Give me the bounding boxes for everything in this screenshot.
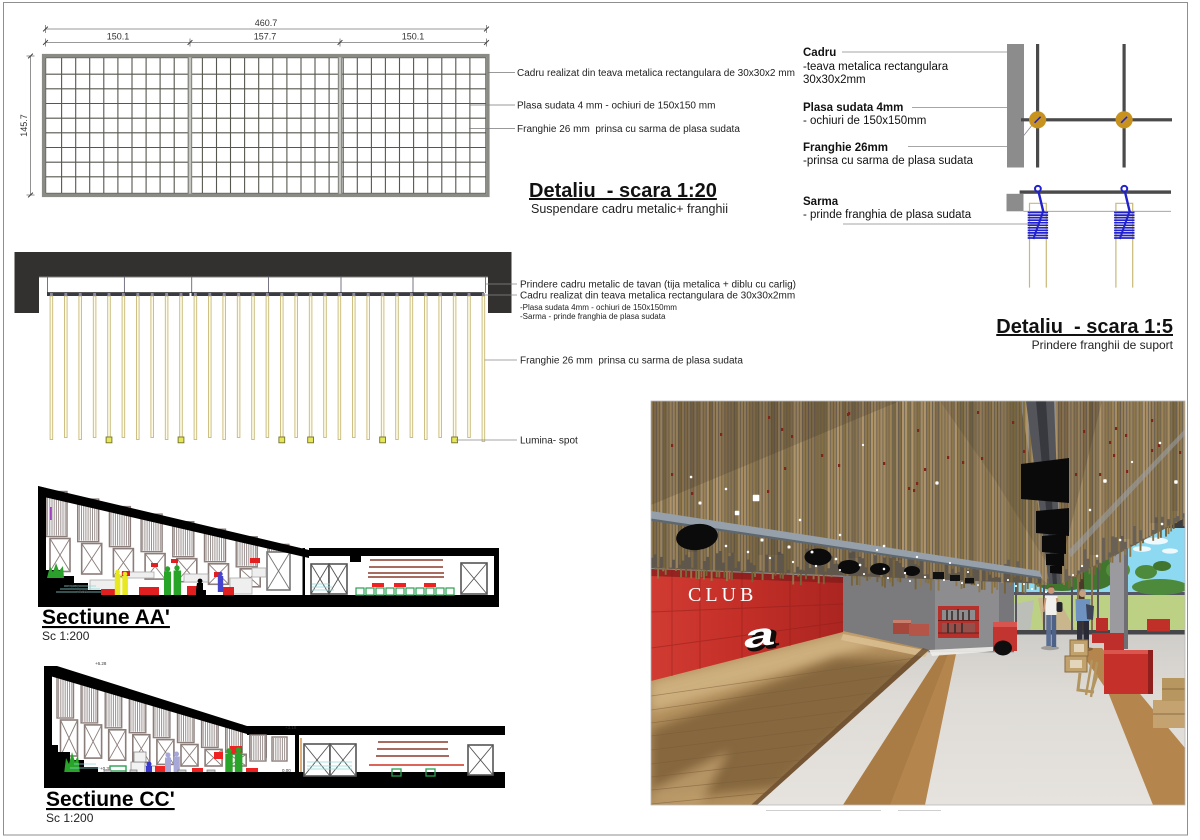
svg-text:Prindere cadru metalic de tava: Prindere cadru metalic de tavan (tija me… xyxy=(520,280,796,291)
svg-text:0.00: 0.00 xyxy=(282,768,291,773)
svg-text:-Plasa sudata 4mm - ochiuri de: -Plasa sudata 4mm - ochiuri de 150x150mm xyxy=(520,303,677,312)
svg-text:CLUB: CLUB xyxy=(688,584,757,606)
svg-text:-Sarma - prinde franghia de pl: -Sarma - prinde franghia de plasa sudata xyxy=(520,312,666,321)
svg-text:145.7: 145.7 xyxy=(19,114,29,137)
svg-text:460.7: 460.7 xyxy=(255,18,278,28)
svg-text:+0.51: +0.51 xyxy=(76,589,88,594)
svg-text:Lumina- spot: Lumina- spot xyxy=(520,436,578,447)
svg-text:Detaliu - scara 1:20: Detaliu - scara 1:20 xyxy=(529,180,717,202)
svg-text:-prinsa cu sarma de plasa suda: -prinsa cu sarma de plasa sudata xyxy=(803,155,974,167)
svg-text:150.1: 150.1 xyxy=(402,32,425,42)
svg-text:Suspendare cadru metalic+ fran: Suspendare cadru metalic+ franghii xyxy=(531,202,728,216)
svg-text:- ochiuri de 150x150mm: - ochiuri de 150x150mm xyxy=(803,115,926,127)
svg-text:Prindere franghii de suport: Prindere franghii de suport xyxy=(1032,338,1174,352)
svg-text:157.7: 157.7 xyxy=(254,32,277,42)
svg-text:Cadru realizat din teava metal: Cadru realizat din teava metalica rectan… xyxy=(517,68,795,79)
svg-text:Detaliu - scara 1:5: Detaliu - scara 1:5 xyxy=(996,316,1173,338)
svg-text:Franghie 26mm: Franghie 26mm xyxy=(803,142,888,154)
svg-text:Sc 1:200: Sc 1:200 xyxy=(42,629,90,643)
svg-text:Sectiune AA': Sectiune AA' xyxy=(42,606,170,629)
svg-text:a: a xyxy=(741,615,777,655)
svg-text:Sarma: Sarma xyxy=(803,196,839,208)
svg-text:+3.18: +3.18 xyxy=(285,725,297,730)
svg-text:- prinde franghia de plasa sud: - prinde franghia de plasa sudata xyxy=(803,209,972,221)
svg-text:Plasa sudata 4 mm - ochiuri de: Plasa sudata 4 mm - ochiuri de 150x150 m… xyxy=(517,101,715,112)
svg-text:Cadru realizat din teava metal: Cadru realizat din teava metalica rectan… xyxy=(520,291,795,302)
svg-text:+6.28: +6.28 xyxy=(95,661,107,666)
svg-text:150.1: 150.1 xyxy=(107,32,130,42)
svg-text:Plasa sudata 4mm: Plasa sudata 4mm xyxy=(803,102,903,114)
svg-text:Sectiune CC': Sectiune CC' xyxy=(46,788,175,811)
svg-text:Cadru: Cadru xyxy=(803,47,836,59)
svg-text:Sc 1:200: Sc 1:200 xyxy=(46,811,94,825)
svg-text:Franghie 26 mm prinsa cu sarm: Franghie 26 mm prinsa cu sarma de plasa … xyxy=(517,124,740,135)
svg-text:Franghie 26 mm prinsa cu sarm: Franghie 26 mm prinsa cu sarma de plasa … xyxy=(520,356,743,367)
svg-text:30x30x2mm: 30x30x2mm xyxy=(803,74,866,86)
svg-text:-teava metalica rectangulara: -teava metalica rectangulara xyxy=(803,61,949,73)
